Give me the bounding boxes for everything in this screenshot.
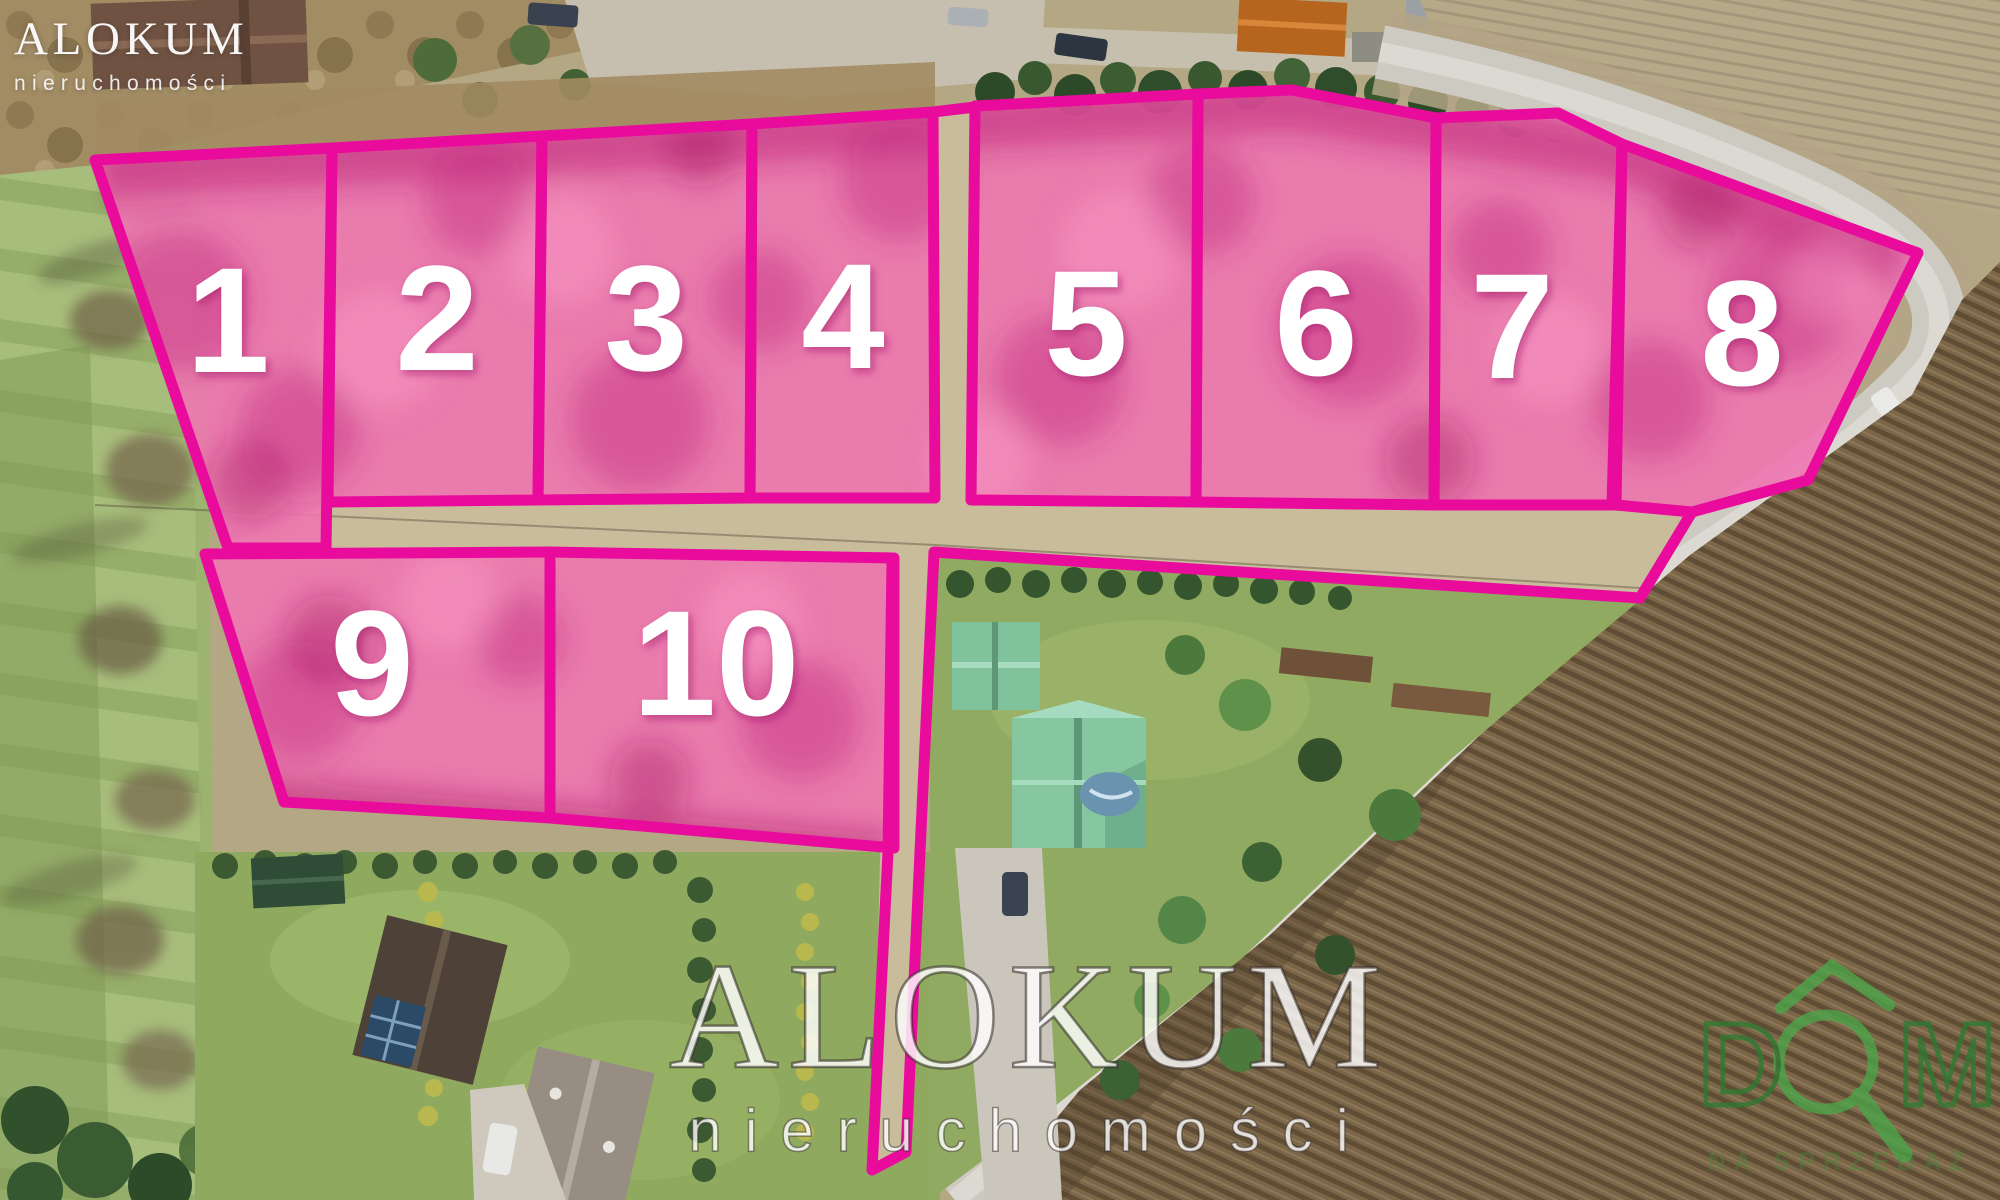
plot-number-10: 10 xyxy=(633,579,800,747)
agency-watermark-center: ALOKUM nieruchomości xyxy=(600,940,1460,1165)
plot-number-3: 3 xyxy=(604,234,687,402)
plot-number-5: 5 xyxy=(1044,239,1127,407)
agency-logo-subtitle: nieruchomości xyxy=(14,72,248,96)
dom-letter-d: D xyxy=(1698,999,1783,1131)
plot-number-2: 2 xyxy=(395,234,478,402)
watermark-subtitle: nieruchomości xyxy=(600,1096,1460,1165)
plot-number-8: 8 xyxy=(1700,249,1783,417)
agency-logo-top-left: ALOKUM nieruchomości xyxy=(14,12,248,96)
house-roof-icon xyxy=(1781,966,1889,1008)
aerial-listing-image: 1 2 3 4 5 6 7 8 9 10 ALOKUM nieruchomośc… xyxy=(0,0,2000,1200)
plot-number-4: 4 xyxy=(801,232,884,400)
plot-number-9: 9 xyxy=(330,579,413,747)
corridor-top-segment xyxy=(933,107,975,112)
watermark-title: ALOKUM xyxy=(600,940,1460,1092)
plot-number-6: 6 xyxy=(1274,239,1357,407)
dom-letter-m: M xyxy=(1898,999,1996,1131)
plot-number-1: 1 xyxy=(186,236,269,404)
plot-number-7: 7 xyxy=(1470,242,1553,410)
dom-logo-tagline: NA SPRZEDAŻ xyxy=(1690,1148,1990,1177)
agency-logo-title: ALOKUM xyxy=(14,12,248,66)
